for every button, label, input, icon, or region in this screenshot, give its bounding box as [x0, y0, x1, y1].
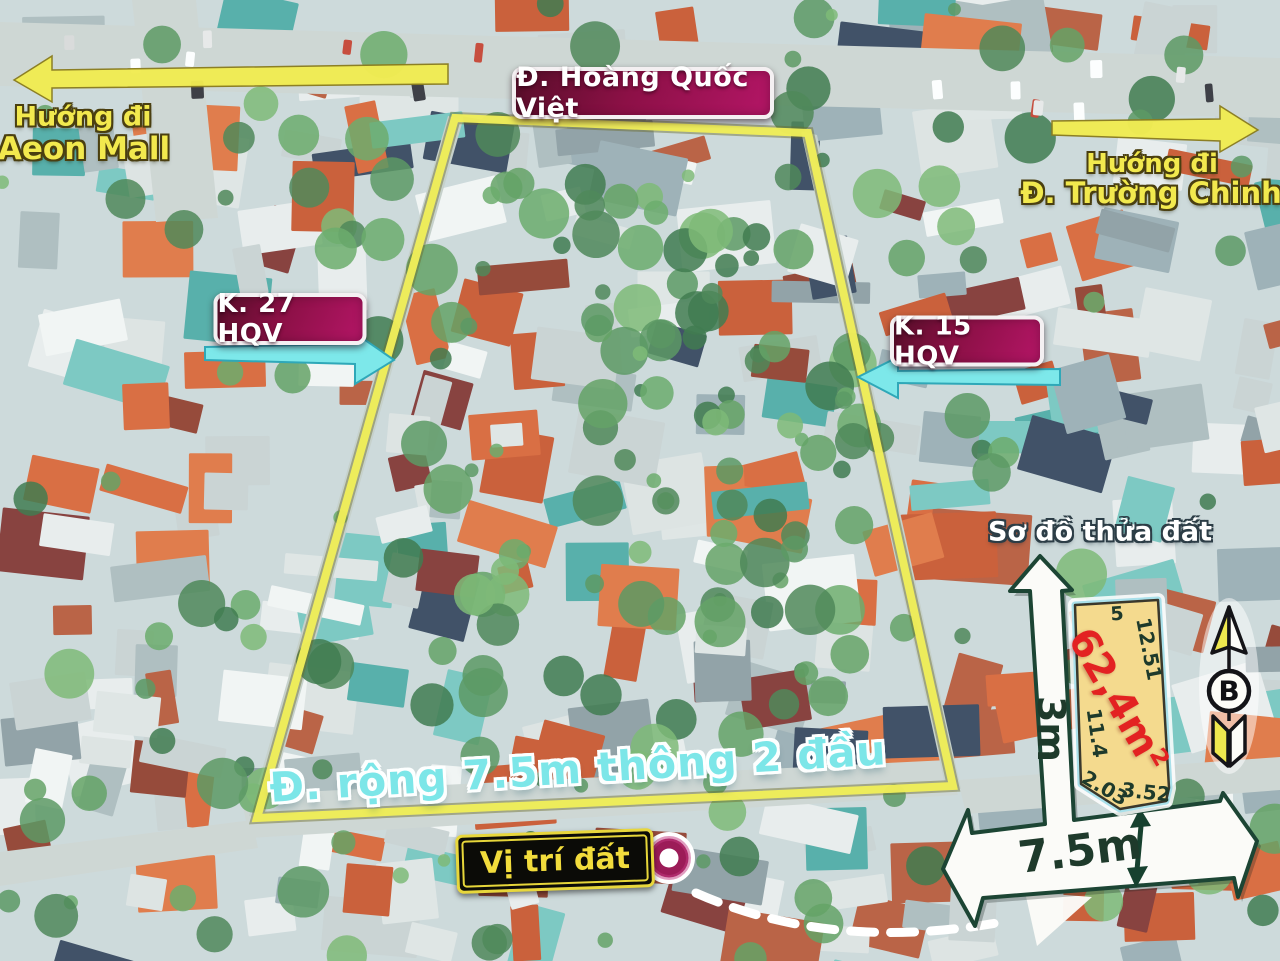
- direction-arrow-right: [1052, 106, 1258, 152]
- plot-boundary-outline: [257, 118, 953, 818]
- street-sign-label: Đ. Hoàng Quốc Việt: [516, 62, 770, 124]
- diagram-title: Sơ đồ thửa đất: [988, 517, 1212, 548]
- alley-width-label: 3m: [1029, 696, 1073, 762]
- direction-arrow-left: [14, 56, 448, 102]
- alley-sign-left-label: K. 27 HQV: [218, 289, 363, 349]
- alley-sign-left: K. 27 HQV: [214, 293, 367, 345]
- alley-sign-right-label: K. 15 HQV: [894, 311, 1040, 371]
- aerial-photo: Hướng đi Aeon Mall Hướng đi Đ. Trường Ch…: [0, 0, 1280, 961]
- direction-left-line1: Hướng đi: [15, 102, 152, 133]
- alley-dashed-path: [696, 893, 1002, 932]
- direction-right-line1: Hướng đi: [1086, 149, 1218, 179]
- direction-right-line2: Đ. Trường Chinh: [1020, 176, 1280, 210]
- direction-left-line2: Aeon Mall: [0, 131, 170, 167]
- dimension-bottom-right: 3.52: [1120, 777, 1172, 806]
- road-pointer-arrowhead: [1025, 892, 1092, 946]
- dimension-top: 5: [1110, 603, 1125, 626]
- location-tag: Vị trí đất: [455, 828, 655, 894]
- location-tag-label: Vị trí đất: [461, 834, 648, 887]
- street-sign: Đ. Hoàng Quốc Việt: [512, 67, 774, 119]
- compass-north-label: B: [1218, 675, 1239, 708]
- alley-sign-right: K. 15 HQV: [890, 316, 1044, 367]
